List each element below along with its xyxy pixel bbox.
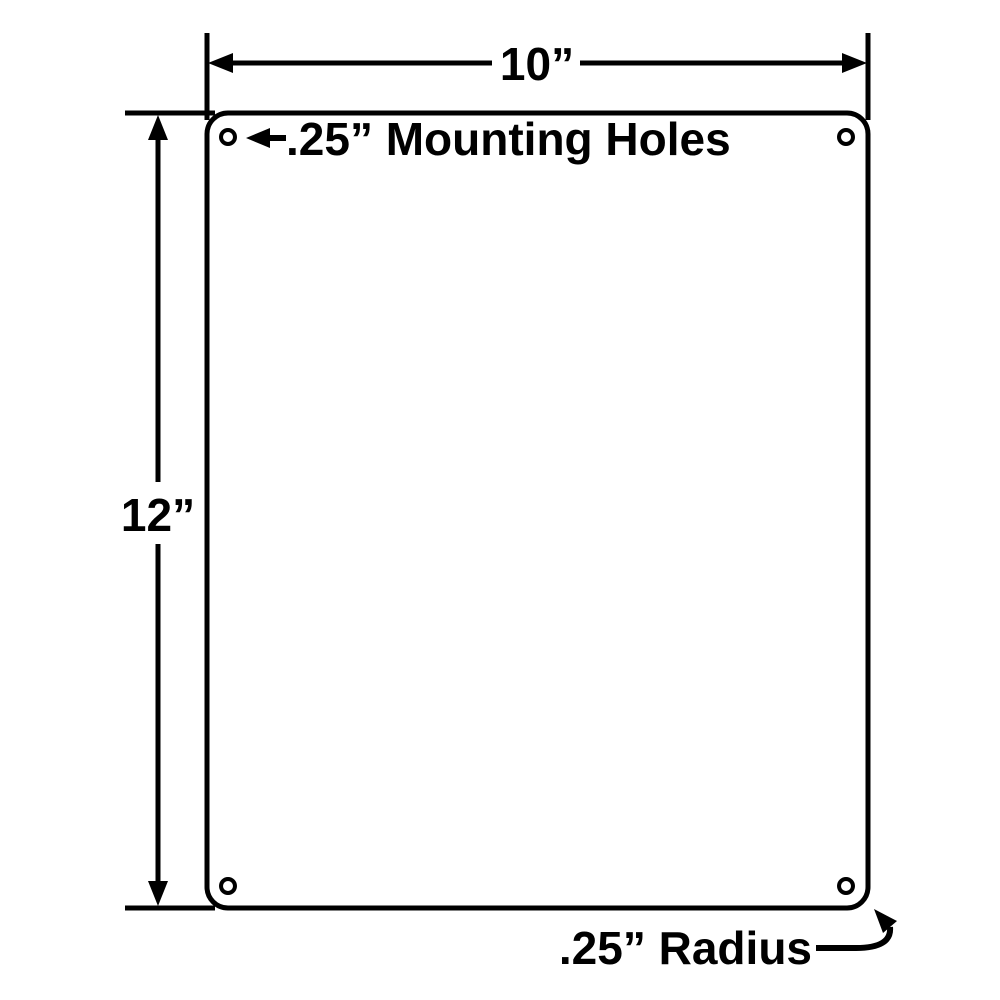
corner-radius-callout: .25” Radius bbox=[559, 909, 897, 974]
width-dimension-label: 10” bbox=[500, 38, 574, 90]
radius-leader-line bbox=[816, 927, 890, 948]
width-arrowhead-right-icon bbox=[842, 53, 867, 73]
width-dimension: 10” bbox=[208, 38, 867, 90]
height-dimension-label: 12” bbox=[121, 489, 195, 541]
radius-arrowhead-icon bbox=[874, 909, 897, 933]
dimensional-drawing: 10” 12” .25” Mounting Holes .25” R bbox=[0, 0, 1000, 1000]
mounting-holes-callout: .25” Mounting Holes bbox=[246, 113, 731, 165]
drawing-svg: 10” 12” .25” Mounting Holes .25” R bbox=[0, 0, 1000, 1000]
width-arrowhead-left-icon bbox=[208, 53, 233, 73]
height-arrowhead-top-icon bbox=[148, 115, 168, 140]
sign-plate-outline bbox=[207, 113, 868, 908]
height-dimension: 12” bbox=[121, 115, 195, 906]
radius-label: .25” Radius bbox=[559, 922, 812, 974]
height-arrowhead-bottom-icon bbox=[148, 881, 168, 906]
mounting-holes-label: .25” Mounting Holes bbox=[286, 113, 731, 165]
